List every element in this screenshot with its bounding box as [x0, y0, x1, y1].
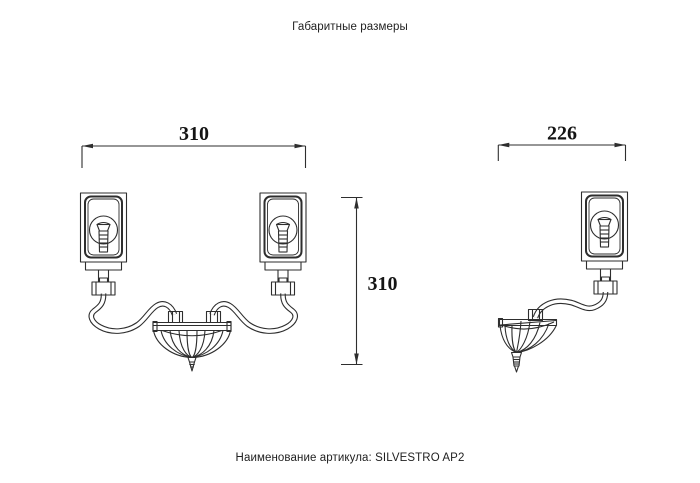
bowl-rim-band — [153, 323, 231, 331]
dim-arrow-right — [615, 143, 626, 148]
drawing-page: Габаритные размеры — [0, 0, 700, 483]
article-name: Наименование артикула: SILVESTRO AP2 — [0, 452, 700, 464]
center-bowl — [153, 312, 231, 372]
bulb-icon — [90, 216, 118, 252]
bowl-finial — [188, 358, 196, 372]
front-view: 310 310 — [81, 123, 398, 371]
dim-arrow-right — [295, 144, 306, 149]
technical-drawing: 310 310 — [0, 0, 700, 483]
dimension-front-width: 310 — [82, 123, 306, 168]
dimension-side-width: 226 — [498, 123, 625, 162]
article-value: SILVESTRO AP2 — [375, 452, 464, 464]
dimension-label: 310 — [179, 123, 209, 145]
wall-bowl — [499, 310, 557, 373]
dimension-front-height: 310 — [341, 198, 398, 365]
bowl-finial — [512, 353, 522, 373]
dim-arrow-left — [82, 144, 93, 149]
dim-arrow-down — [354, 354, 359, 365]
arm-side — [536, 292, 606, 318]
holder-side — [594, 269, 617, 294]
dimension-label: 226 — [547, 123, 577, 145]
dimension-label: 310 — [368, 273, 398, 295]
article-label: Наименование артикула: — [236, 452, 372, 464]
bowl-outline — [154, 331, 231, 358]
dim-arrow-up — [354, 198, 359, 209]
side-view: 226 — [498, 123, 627, 373]
holder-right — [272, 270, 295, 295]
bulb-icon — [269, 216, 297, 252]
holder-left — [92, 270, 115, 295]
bulb-icon — [591, 211, 619, 247]
dim-arrow-left — [498, 143, 509, 148]
